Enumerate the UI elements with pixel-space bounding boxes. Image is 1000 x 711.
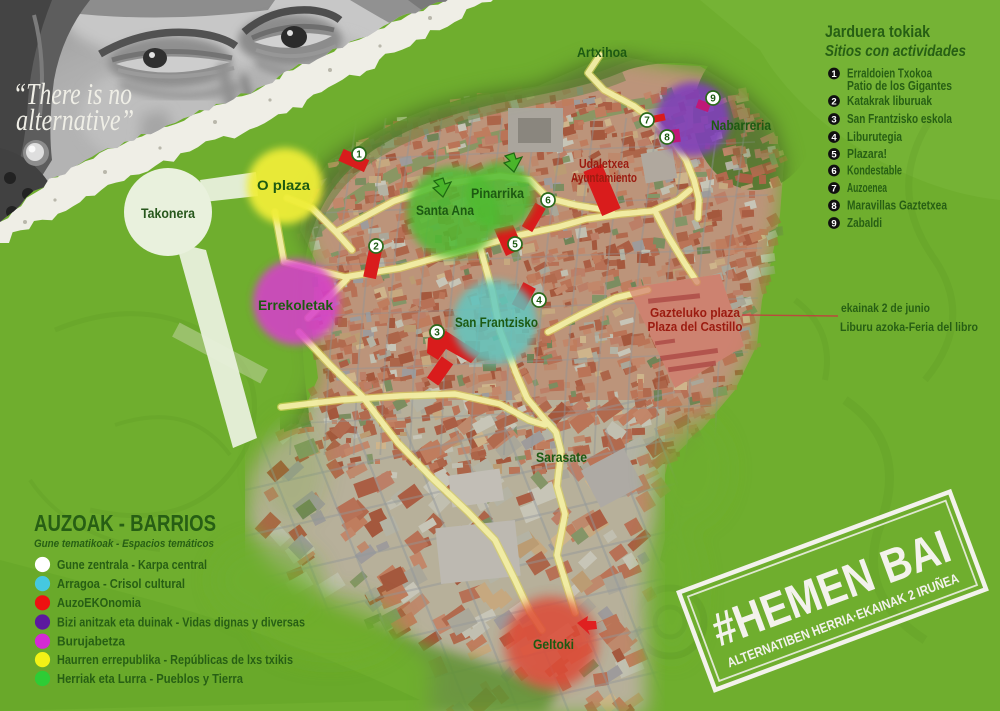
svg-text:Takonera: Takonera: [141, 205, 195, 221]
svg-text:Maravillas Gaztetxea: Maravillas Gaztetxea: [847, 199, 948, 213]
svg-text:4: 4: [536, 296, 542, 307]
svg-text:Sarasate: Sarasate: [536, 450, 587, 465]
svg-text:Plazara!: Plazara!: [847, 147, 887, 161]
svg-text:Patio de los Gigantes: Patio de los Gigantes: [847, 79, 952, 93]
svg-text:4: 4: [831, 132, 837, 143]
svg-text:7: 7: [644, 116, 650, 127]
svg-text:San Frantzisko: San Frantzisko: [455, 315, 538, 330]
svg-text:Sitios con actividades: Sitios con actividades: [825, 43, 966, 60]
svg-text:6: 6: [831, 166, 836, 177]
svg-text:San Frantzisko eskola: San Frantzisko eskola: [847, 112, 953, 126]
svg-text:Herriak eta Lurra - Pueblos y: Herriak eta Lurra - Pueblos y Tierra: [57, 672, 244, 686]
svg-text:Ayuntamiento: Ayuntamiento: [571, 171, 637, 185]
svg-text:Katakrak liburuak: Katakrak liburuak: [847, 94, 932, 108]
svg-text:alternative”: alternative”: [16, 102, 134, 137]
svg-text:9: 9: [710, 94, 716, 105]
svg-text:3: 3: [434, 328, 440, 339]
svg-text:8: 8: [664, 133, 670, 144]
svg-text:2: 2: [831, 96, 836, 107]
svg-text:6: 6: [545, 196, 551, 207]
svg-text:Udaletxea: Udaletxea: [579, 157, 630, 171]
svg-text:Liburutegia: Liburutegia: [847, 130, 903, 144]
svg-text:1: 1: [356, 150, 362, 161]
svg-text:ekainak 2 de junio: ekainak 2 de junio: [841, 303, 930, 315]
svg-text:3: 3: [831, 114, 836, 125]
svg-text:O plaza: O plaza: [257, 178, 311, 193]
svg-text:Gune tematikoak - Espacios tem: Gune tematikoak - Espacios temáticos: [34, 538, 214, 550]
svg-text:Nabarreria: Nabarreria: [711, 118, 771, 133]
svg-text:Artxihoa: Artxihoa: [577, 45, 627, 60]
svg-text:Kondestable: Kondestable: [847, 164, 902, 178]
svg-text:AUZOAK - BARRIOS: AUZOAK - BARRIOS: [34, 510, 216, 536]
svg-text:Geltoki: Geltoki: [533, 637, 574, 652]
svg-text:Liburu azoka-Feria del libro: Liburu azoka-Feria del libro: [840, 322, 978, 334]
svg-text:8: 8: [831, 201, 836, 212]
svg-text:7: 7: [831, 183, 836, 194]
svg-text:Arragoa - Crisol cultural: Arragoa - Crisol cultural: [57, 577, 185, 591]
svg-text:Haurren errepublika - Repúblic: Haurren errepublika - Repúblicas de lxs …: [57, 653, 293, 667]
svg-text:Auzoenea: Auzoenea: [847, 181, 888, 195]
svg-text:Gazteluko plaza: Gazteluko plaza: [650, 306, 741, 320]
svg-text:5: 5: [512, 240, 518, 251]
svg-text:Burujabetza: Burujabetza: [57, 635, 126, 649]
svg-text:2: 2: [373, 242, 379, 253]
svg-text:5: 5: [831, 149, 837, 160]
svg-text:Errekoletak: Errekoletak: [258, 298, 333, 313]
svg-text:Zabaldi: Zabaldi: [847, 216, 882, 230]
svg-text:1: 1: [831, 69, 837, 80]
svg-text:Gune zentrala - Karpa central: Gune zentrala - Karpa central: [57, 558, 207, 572]
svg-text:AuzoEKOnomia: AuzoEKOnomia: [57, 596, 142, 610]
svg-text:9: 9: [831, 218, 836, 229]
svg-text:Plaza del Castillo: Plaza del Castillo: [648, 320, 743, 334]
svg-text:Bizi anitzak eta duinak - Vida: Bizi anitzak eta duinak - Vidas dignas y…: [57, 615, 305, 629]
svg-text:Jarduera tokiak: Jarduera tokiak: [825, 23, 931, 41]
svg-text:Santa Ana: Santa Ana: [416, 203, 474, 218]
svg-text:Pinarrika: Pinarrika: [471, 186, 524, 201]
